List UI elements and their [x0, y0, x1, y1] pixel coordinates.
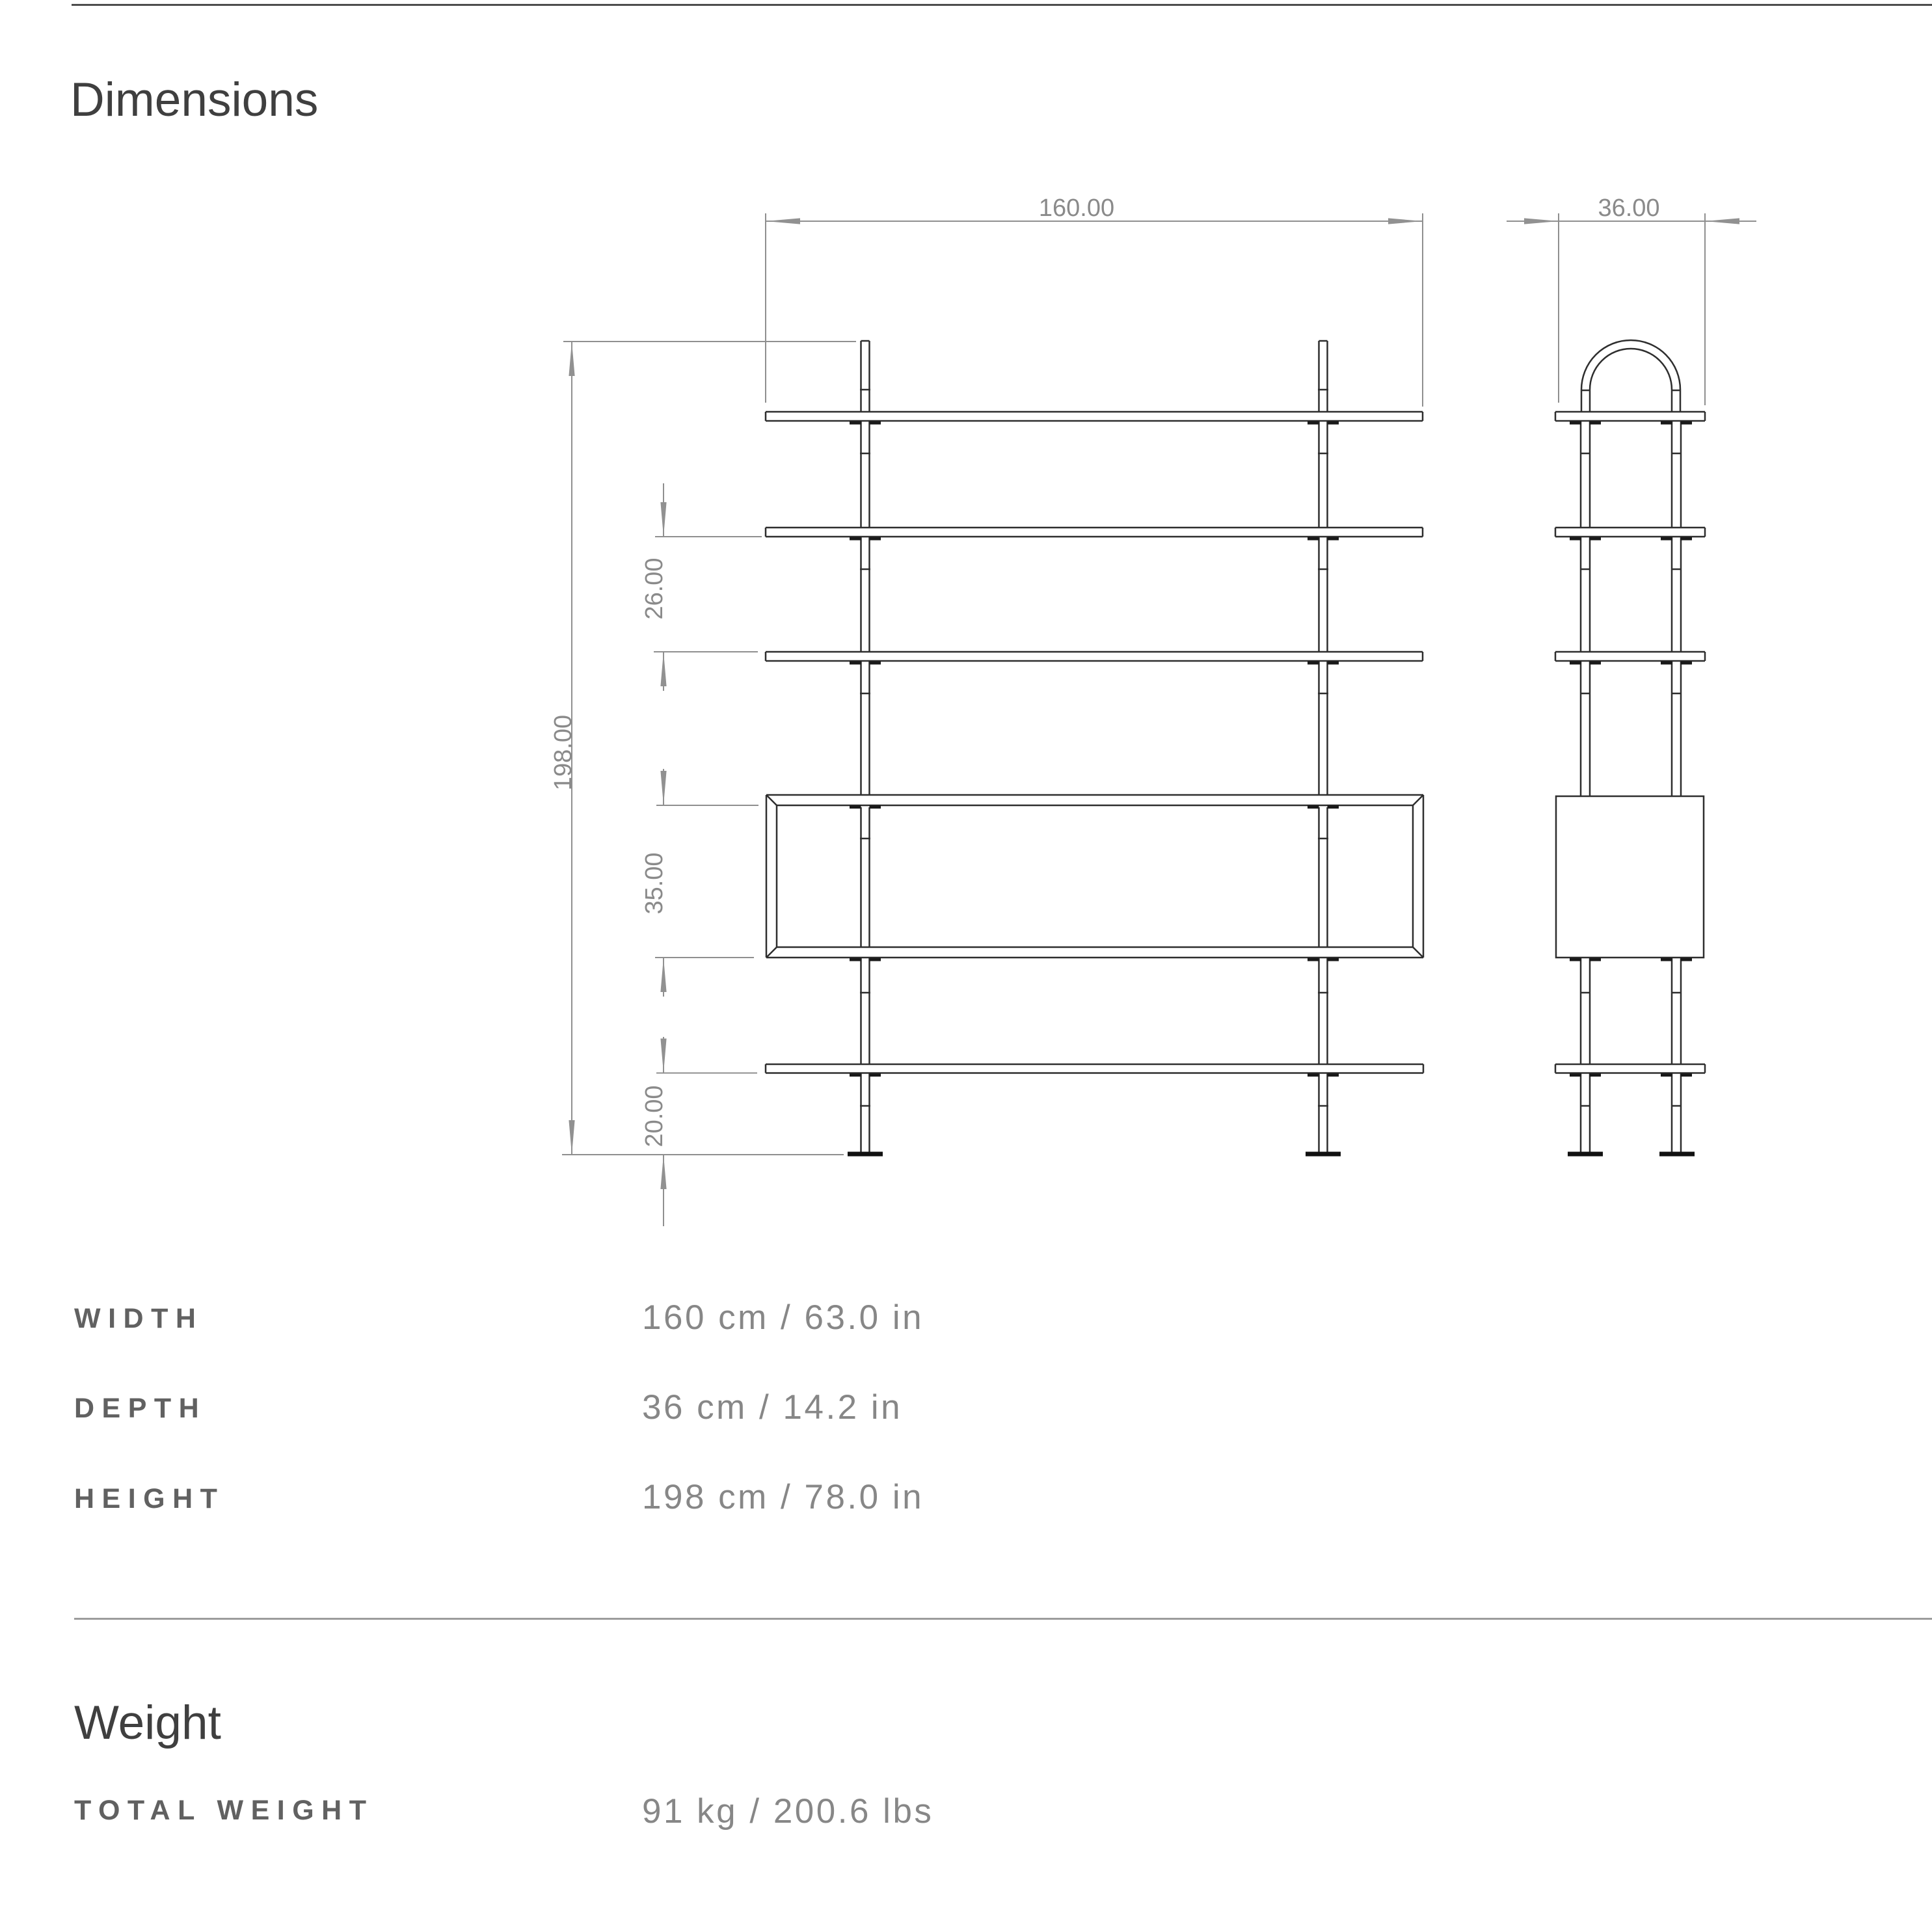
svg-text:198.00: 198.00	[550, 715, 577, 790]
svg-text:20.00: 20.00	[641, 1085, 668, 1147]
svg-text:160.00: 160.00	[1039, 195, 1114, 222]
svg-text:26.00: 26.00	[641, 557, 668, 619]
svg-text:36.00: 36.00	[1598, 195, 1659, 222]
svg-text:35.00: 35.00	[641, 852, 668, 914]
